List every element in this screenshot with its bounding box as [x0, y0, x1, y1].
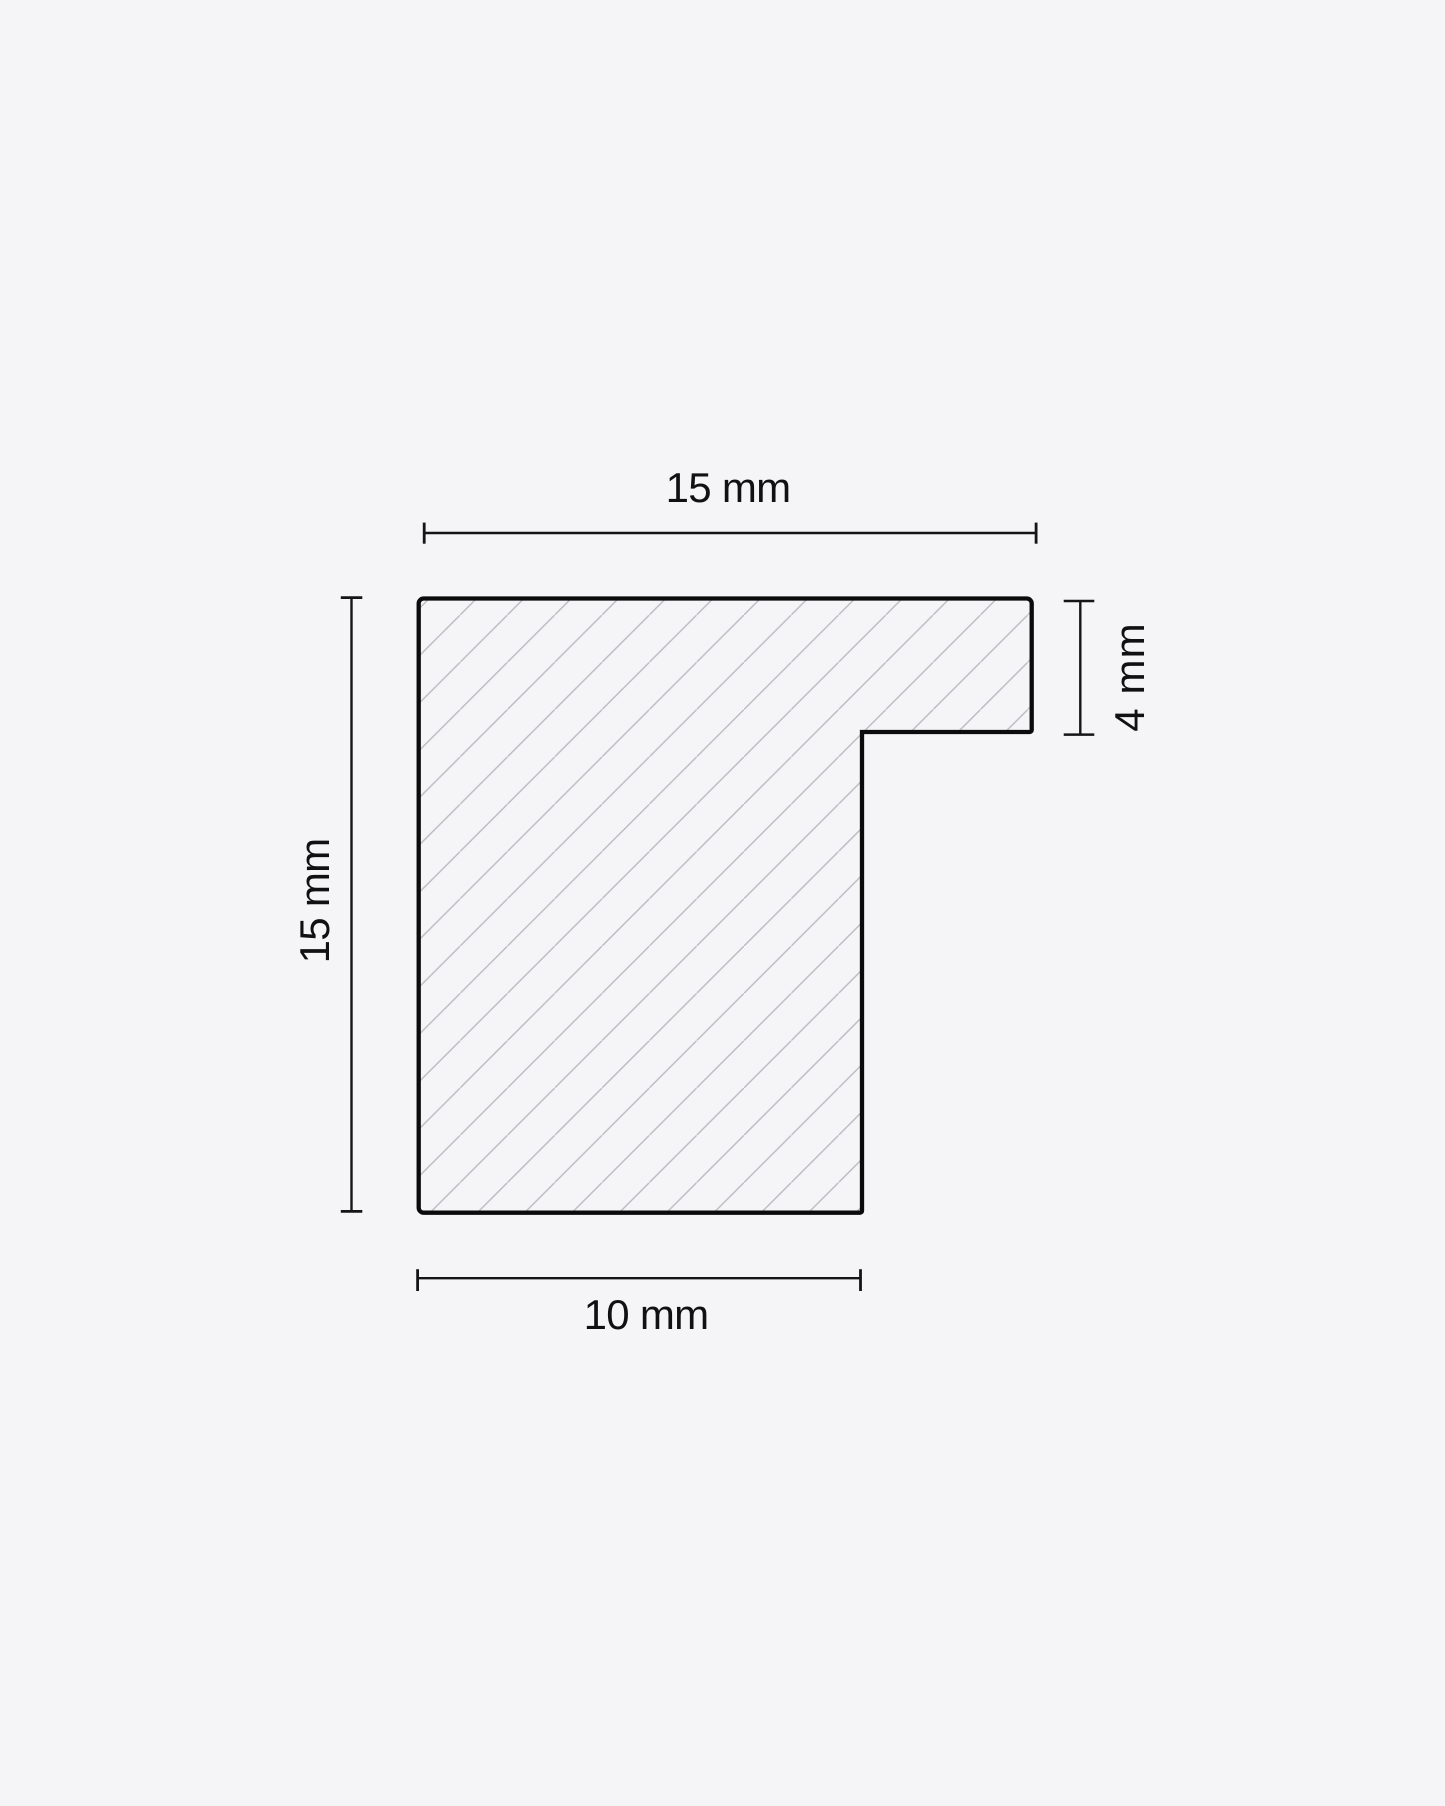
svg-text:15 mm: 15 mm: [291, 839, 338, 964]
svg-text:15 mm: 15 mm: [666, 464, 791, 511]
svg-text:10 mm: 10 mm: [584, 1291, 709, 1338]
svg-text:4 mm: 4 mm: [1106, 622, 1153, 731]
